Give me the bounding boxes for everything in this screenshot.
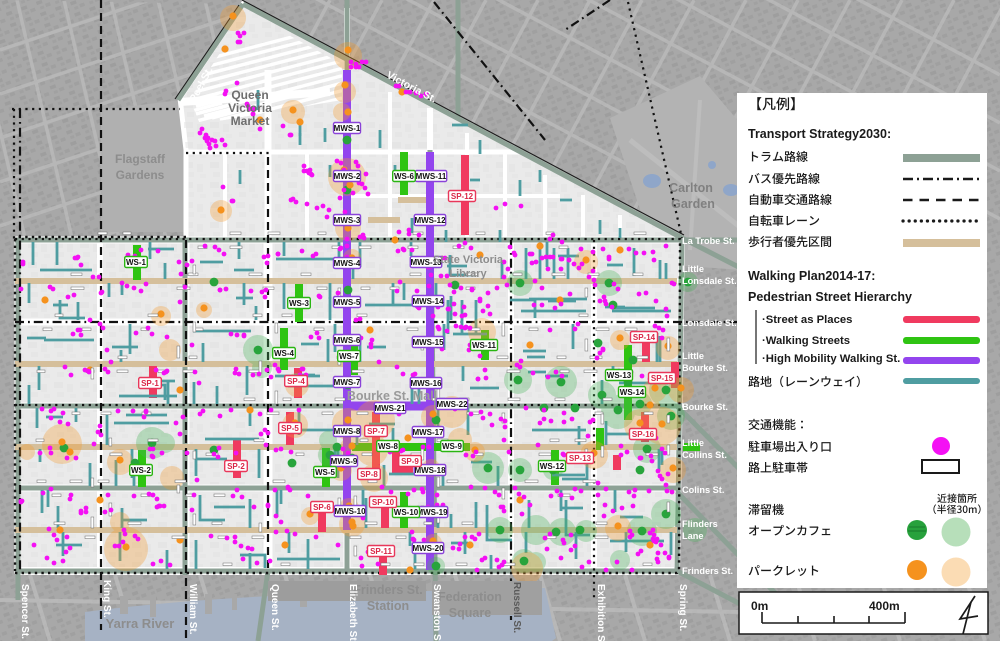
svg-text:Spencer St.: Spencer St. xyxy=(19,584,30,639)
svg-text:WS-12: WS-12 xyxy=(540,462,565,471)
svg-text:SP-14: SP-14 xyxy=(633,333,656,342)
svg-text:WS-14: WS-14 xyxy=(620,388,645,397)
svg-text:Pedestrian Street Hierarchy: Pedestrian Street Hierarchy xyxy=(748,290,912,304)
svg-text:SP-7: SP-7 xyxy=(367,427,385,436)
svg-text:Queen St.: Queen St. xyxy=(269,584,280,631)
svg-text:Lonsdale St.: Lonsdale St. xyxy=(682,276,737,286)
svg-text:WS-6: WS-6 xyxy=(394,172,415,181)
svg-text:SP-1: SP-1 xyxy=(141,379,159,388)
svg-text:Spring St.: Spring St. xyxy=(677,584,688,631)
svg-text:La Trobe St.: La Trobe St. xyxy=(682,236,735,246)
svg-text:SP-12: SP-12 xyxy=(451,192,474,201)
svg-text:MWS-14: MWS-14 xyxy=(412,297,444,306)
svg-text:Carlton: Carlton xyxy=(669,181,713,195)
svg-text:Bourke St.: Bourke St. xyxy=(682,402,728,412)
svg-text:Little: Little xyxy=(682,351,704,361)
svg-text:WS-8: WS-8 xyxy=(378,442,399,451)
svg-text:Collins St.: Collins St. xyxy=(682,450,727,460)
svg-text:0m: 0m xyxy=(751,599,768,613)
svg-text:MWS-17: MWS-17 xyxy=(412,428,444,437)
svg-text:SP-2: SP-2 xyxy=(227,462,245,471)
svg-text:Colins St.: Colins St. xyxy=(682,485,724,495)
svg-text:SP-15: SP-15 xyxy=(651,374,674,383)
svg-text:SP-16: SP-16 xyxy=(632,430,655,439)
svg-text:WS-2: WS-2 xyxy=(131,466,152,475)
svg-text:Bourke St. Mall: Bourke St. Mall xyxy=(347,389,437,403)
svg-text:WS-10: WS-10 xyxy=(394,508,419,517)
svg-text:Garden: Garden xyxy=(671,197,715,211)
svg-text:SP-9: SP-9 xyxy=(401,457,419,466)
svg-text:Federation: Federation xyxy=(438,590,502,604)
svg-text:MWS-10: MWS-10 xyxy=(334,507,366,516)
svg-text:MWS-15: MWS-15 xyxy=(412,338,444,347)
svg-text:Yarra River: Yarra River xyxy=(106,616,175,631)
svg-text:Queen: Queen xyxy=(231,88,268,102)
svg-text:Walking Plan2014-17:: Walking Plan2014-17: xyxy=(748,269,875,283)
svg-text:Frinders St.: Frinders St. xyxy=(682,566,733,576)
svg-text:State Victoria: State Victoria xyxy=(433,254,504,266)
svg-text:MWS-1: MWS-1 xyxy=(334,124,361,133)
svg-text:Flinders: Flinders xyxy=(682,519,718,529)
svg-text:·Street as Places: ·Street as Places xyxy=(762,314,852,326)
svg-text:SP-10: SP-10 xyxy=(372,498,395,507)
svg-text:Victoria: Victoria xyxy=(228,101,272,115)
svg-text:Lonsdale St.: Lonsdale St. xyxy=(682,318,737,328)
svg-text:SP-11: SP-11 xyxy=(370,547,392,556)
svg-text:·High Mobility Walking St.: ·High Mobility Walking St. xyxy=(762,353,900,365)
svg-text:WS-9: WS-9 xyxy=(442,442,463,451)
svg-text:Little: Little xyxy=(682,438,704,448)
svg-text:MWS-11: MWS-11 xyxy=(416,172,447,181)
svg-text:MWS-16: MWS-16 xyxy=(410,379,442,388)
svg-text:MWS-8: MWS-8 xyxy=(334,427,361,436)
svg-text:MWS-20: MWS-20 xyxy=(412,544,444,553)
svg-text:MWS-2: MWS-2 xyxy=(334,172,361,181)
svg-text:Library: Library xyxy=(449,268,487,280)
svg-text:MWS-19: MWS-19 xyxy=(416,508,448,517)
svg-text:MWS-5: MWS-5 xyxy=(334,298,361,307)
svg-text:WS-7: WS-7 xyxy=(339,352,360,361)
svg-text:MWS-4: MWS-4 xyxy=(334,259,361,268)
svg-text:WS-4: WS-4 xyxy=(274,349,295,358)
svg-text:·Walking Streets: ·Walking Streets xyxy=(762,335,850,347)
svg-text:Station: Station xyxy=(367,599,409,613)
svg-text:MWS-6: MWS-6 xyxy=(334,336,361,345)
svg-text:Gardens: Gardens xyxy=(116,168,165,182)
svg-text:SP-13: SP-13 xyxy=(569,454,592,463)
svg-text:WS-1: WS-1 xyxy=(126,258,147,267)
svg-text:King St.: King St. xyxy=(101,580,112,618)
svg-text:Frinders St.: Frinders St. xyxy=(353,583,422,597)
svg-text:400m: 400m xyxy=(869,599,900,613)
svg-text:MWS-12: MWS-12 xyxy=(414,216,446,225)
svg-text:Little: Little xyxy=(682,264,704,274)
svg-text:Lane: Lane xyxy=(682,531,703,541)
svg-text:SP-8: SP-8 xyxy=(360,470,378,479)
svg-text:Elizabeth St.: Elizabeth St. xyxy=(347,584,358,641)
svg-text:Market: Market xyxy=(231,114,270,128)
svg-text:MWS-21: MWS-21 xyxy=(374,404,406,413)
svg-text:Exhibition St.: Exhibition St. xyxy=(595,584,606,641)
svg-text:Bourke St.: Bourke St. xyxy=(682,363,728,373)
svg-text:MWS-3: MWS-3 xyxy=(334,216,361,225)
svg-text:Russell St.: Russell St. xyxy=(511,582,522,633)
svg-text:Transport Strategy2030:: Transport Strategy2030: xyxy=(748,127,891,141)
svg-text:Flagstaff: Flagstaff xyxy=(115,152,166,166)
svg-text:SP-5: SP-5 xyxy=(281,424,299,433)
svg-text:WS-3: WS-3 xyxy=(289,299,310,308)
svg-text:WS-5: WS-5 xyxy=(315,468,336,477)
svg-text:MWS-22: MWS-22 xyxy=(436,400,468,409)
svg-text:WS-11: WS-11 xyxy=(472,341,497,350)
svg-text:Square: Square xyxy=(449,606,491,620)
svg-text:MWS-9: MWS-9 xyxy=(331,457,358,466)
svg-text:William St.: William St. xyxy=(187,584,198,635)
svg-text:WS-13: WS-13 xyxy=(607,371,632,380)
svg-text:MWS-7: MWS-7 xyxy=(334,378,361,387)
svg-text:SP-6: SP-6 xyxy=(313,503,331,512)
svg-text:Swanston St.: Swanston St. xyxy=(431,584,442,641)
svg-text:SP-4: SP-4 xyxy=(287,377,305,386)
